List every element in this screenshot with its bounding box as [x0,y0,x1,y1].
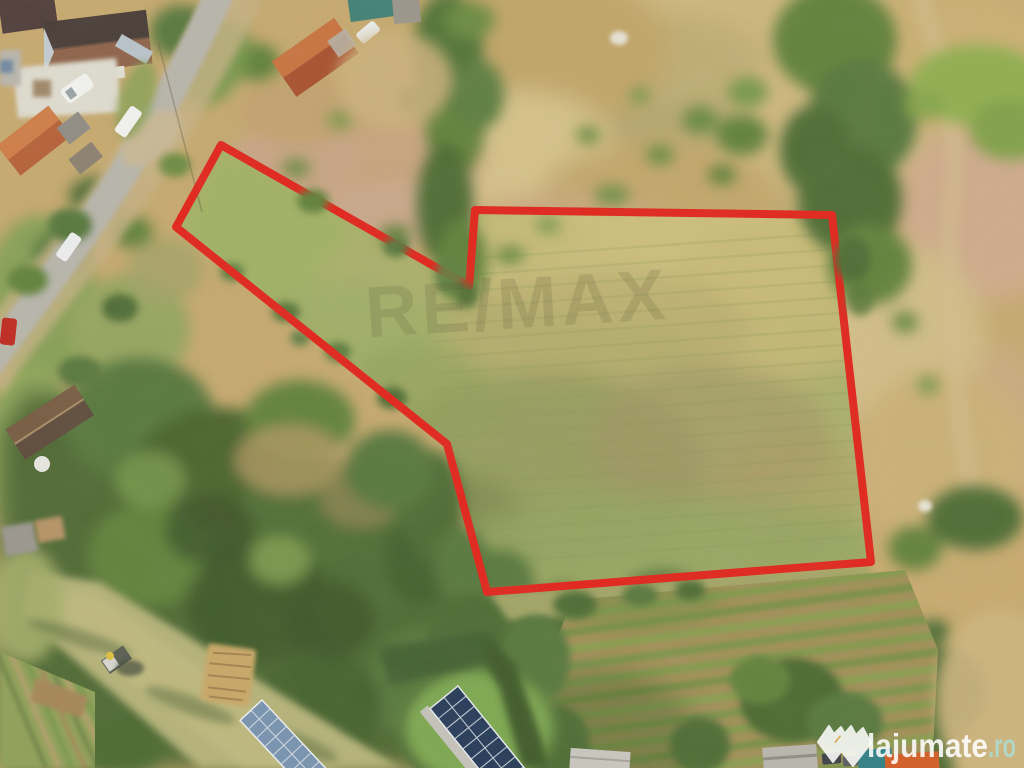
svg-text:.ro: .ro [988,727,1016,764]
svg-text:lajumate: lajumate [867,727,988,764]
